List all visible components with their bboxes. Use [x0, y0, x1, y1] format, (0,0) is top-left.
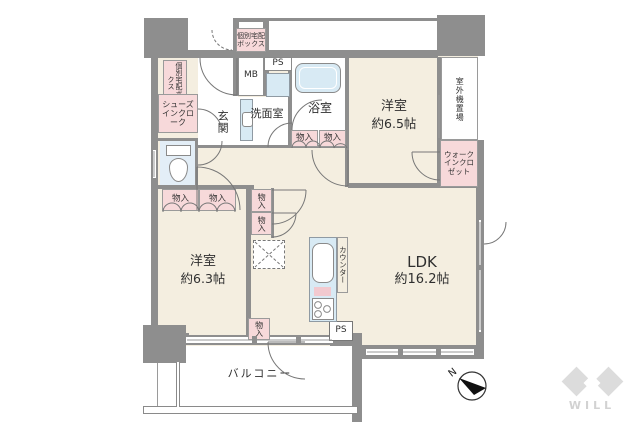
door-bathroom — [292, 100, 322, 130]
door-storage-v1 — [272, 190, 306, 224]
door-shoes-cloak — [198, 109, 222, 133]
door-entrance — [200, 58, 237, 95]
compass-north-label: N — [447, 366, 460, 379]
delivery-hatch-arc — [212, 30, 232, 50]
door-storage-v2 — [272, 213, 296, 237]
door-bedroom63 — [197, 167, 240, 210]
door-ldk-east — [484, 222, 506, 244]
delivery-box-top-label: 個別宅配ボックス — [237, 32, 265, 48]
window-dividers — [252, 265, 483, 357]
refrigerator-x — [255, 242, 283, 267]
closet-pleats — [163, 141, 347, 212]
door-toilet — [198, 141, 222, 165]
door-balcony — [268, 342, 305, 379]
brand-label: WILL — [569, 399, 615, 412]
stove-burners — [315, 302, 331, 318]
door-wic — [412, 152, 440, 180]
delivery-box-top: 個別宅配ボックス — [236, 28, 266, 52]
floor-plan: 個別宅配ボックス 個別宅配ボックス シューズインクローク 物入 物入 物入 物入… — [0, 0, 640, 427]
dashed-symbols — [212, 30, 283, 267]
door-washroom — [268, 123, 292, 147]
plan-linework: N WILL — [0, 0, 640, 427]
compass: N — [447, 366, 486, 400]
door-arcs — [197, 58, 506, 379]
will-logo: WILL — [562, 367, 624, 412]
door-bedroom65 — [312, 150, 348, 186]
